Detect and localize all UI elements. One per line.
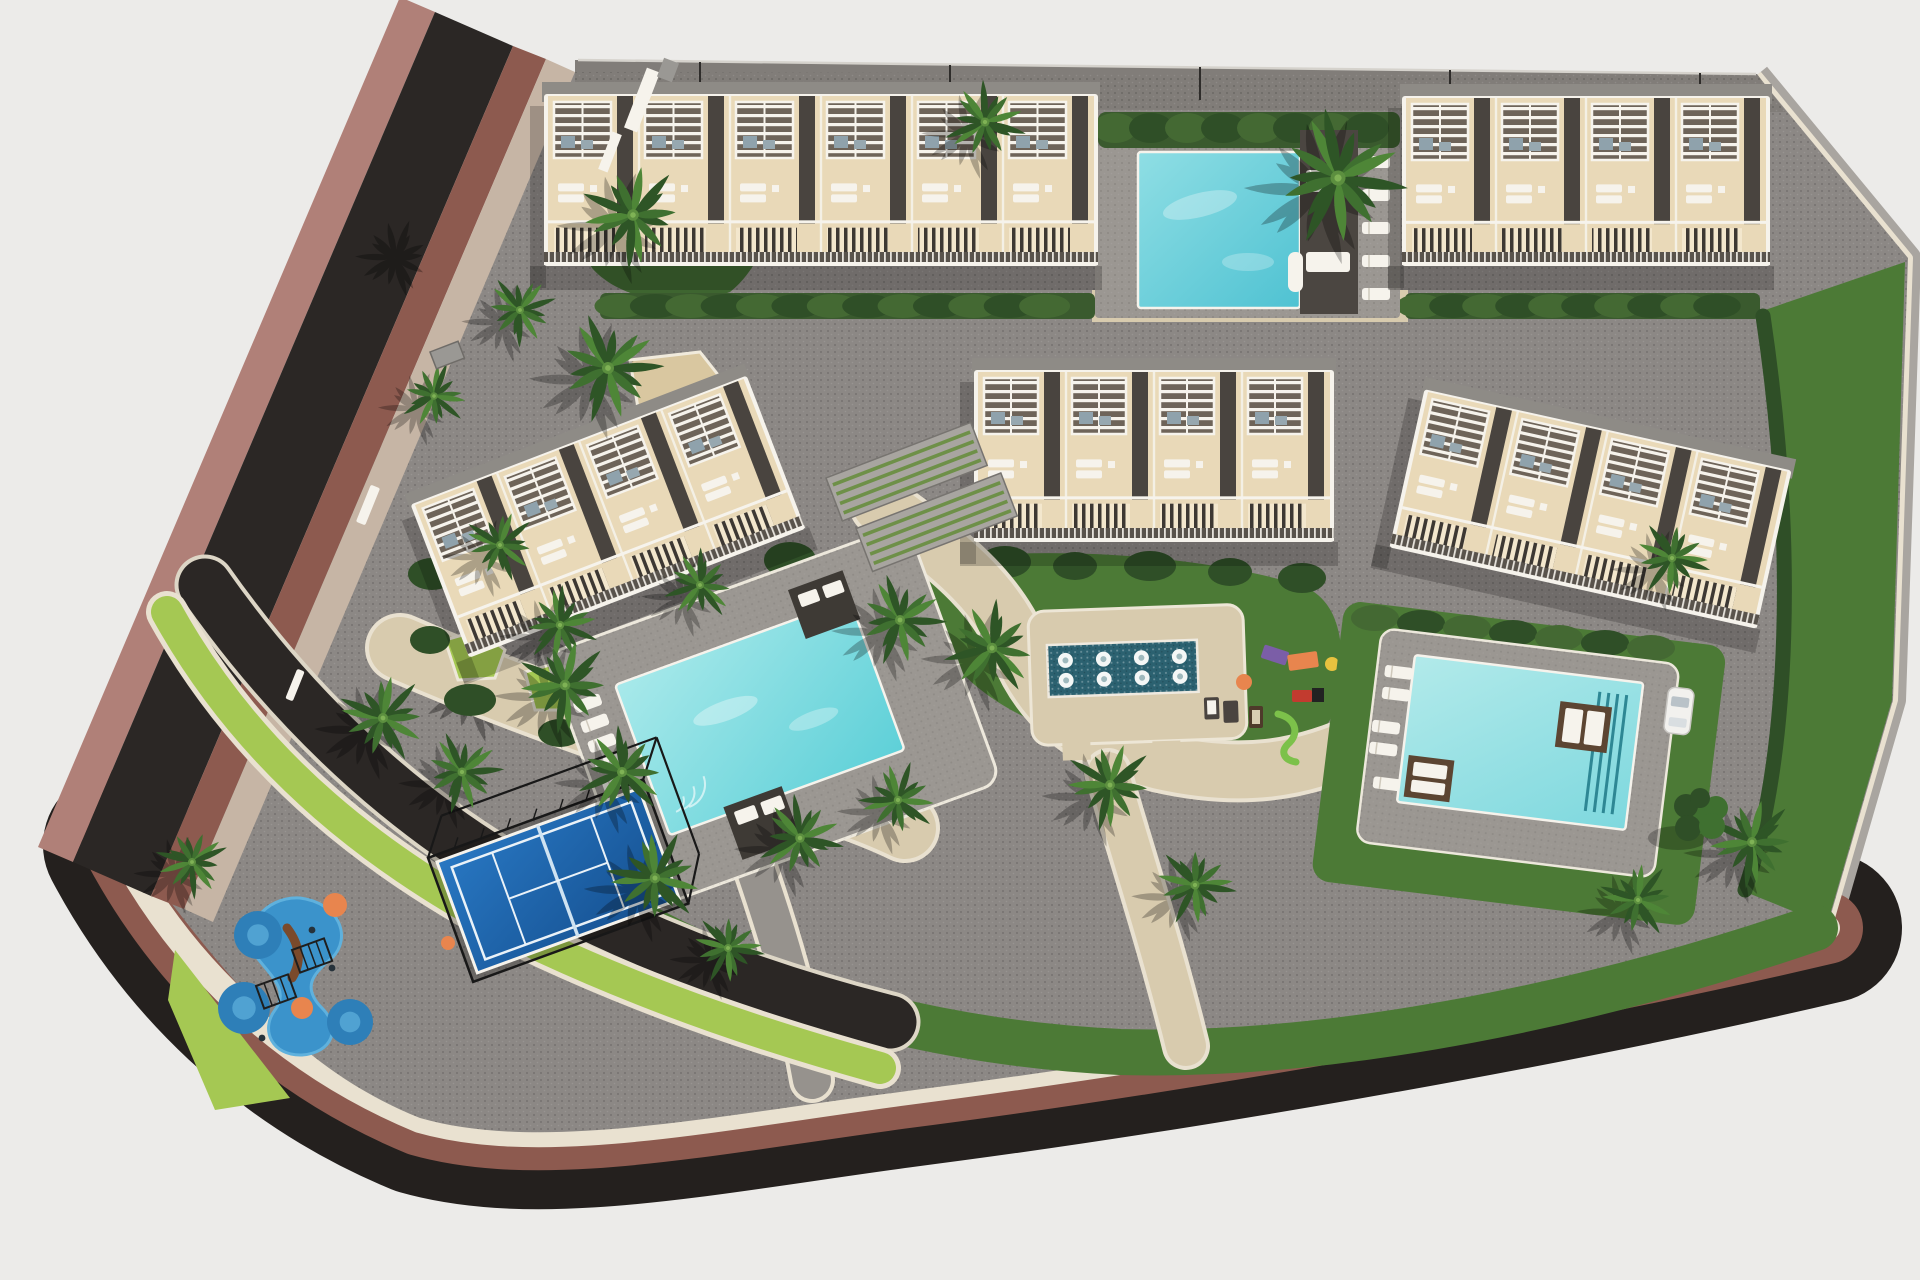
- fountain-splash-pool: [1028, 604, 1248, 763]
- building-north-east: [1388, 84, 1774, 290]
- pool-east: [1311, 600, 1727, 927]
- site-plan-rendering: [0, 0, 1920, 1280]
- site-plan-svg: [0, 0, 1920, 1280]
- building-central: [960, 358, 1338, 566]
- parked-car: [1663, 687, 1694, 736]
